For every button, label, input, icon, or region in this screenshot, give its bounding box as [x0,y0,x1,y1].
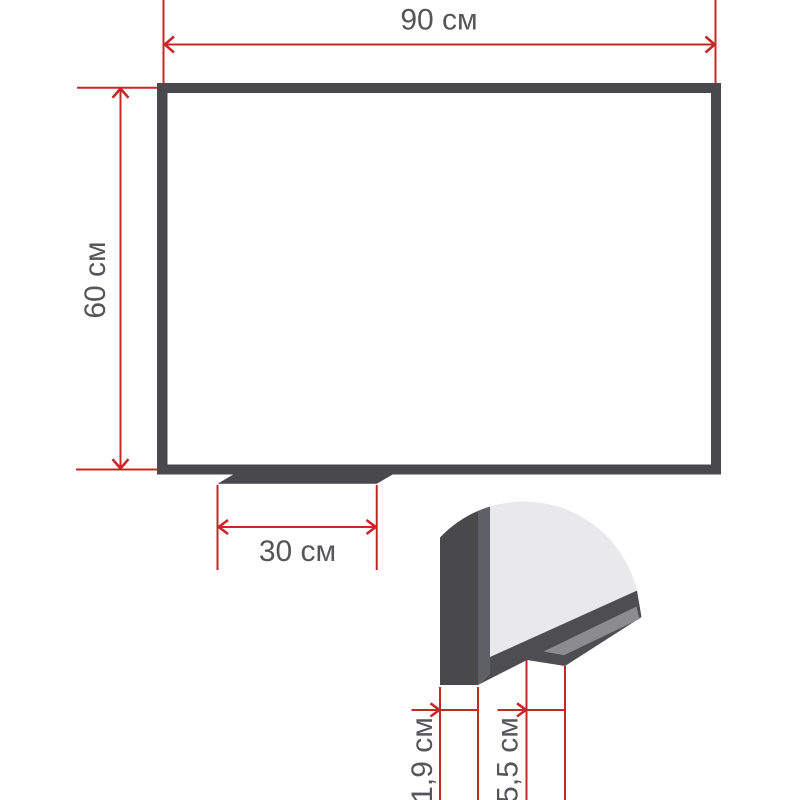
svg-text:30 см: 30 см [259,535,336,568]
svg-text:90 см: 90 см [400,4,477,37]
svg-text:60 см: 60 см [79,241,112,318]
svg-text:5,5 см: 5,5 см [492,717,525,800]
svg-text:1,9 см: 1,9 см [406,717,439,800]
